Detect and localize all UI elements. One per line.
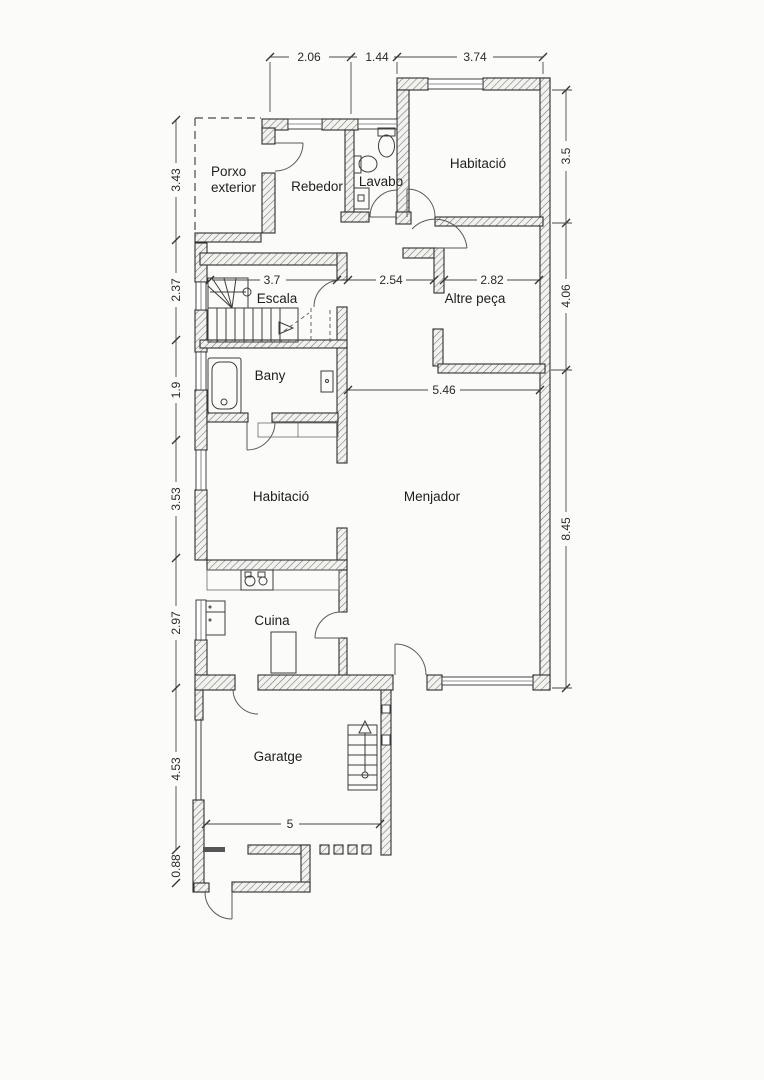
wall-segment (339, 638, 347, 677)
room-label-porxo-1: Porxo (211, 164, 246, 179)
room-label-porxo-2: exterior (211, 180, 257, 195)
window-marker (196, 282, 206, 310)
room-label-menjador: Menjador (404, 489, 461, 504)
dim-interior-garatge: 5 (287, 817, 294, 831)
wall-segment (322, 119, 358, 130)
paper-background (0, 0, 764, 1080)
wall-segment (258, 675, 393, 690)
dim-interior-hall: 2.54 (379, 273, 403, 287)
room-label-habitacio-mid: Habitació (253, 489, 309, 504)
vent-marker (382, 735, 390, 745)
wall-segment (427, 675, 442, 690)
dim-top-1: 1.44 (365, 50, 389, 64)
window-marker (288, 119, 322, 129)
wall-segment (337, 307, 347, 463)
wall-segment (207, 413, 248, 422)
dim-left-0: 3.43 (169, 168, 183, 192)
wall-segment (435, 217, 543, 226)
wall-segment (262, 128, 275, 144)
wall-segment (193, 800, 204, 892)
wall-segment (195, 640, 207, 675)
wall-segment (207, 560, 347, 570)
room-label-escala: Escala (257, 291, 298, 306)
wall-segment (533, 675, 550, 690)
wall-segment (195, 490, 207, 560)
wall-segment (334, 845, 343, 854)
wall-segment (272, 413, 338, 422)
dim-interior-escala: 3.7 (264, 273, 281, 287)
dim-top-2: 3.74 (463, 50, 487, 64)
dim-left-1: 2.37 (169, 278, 183, 302)
wall-segment (320, 845, 329, 854)
wall-segment (195, 390, 207, 450)
floor-plan-svg: Porxo exterior Rebedor Lavabo Habitació … (0, 0, 764, 1080)
dim-left-6: 0.88 (169, 854, 183, 878)
wall-segment (200, 340, 347, 348)
window-marker (196, 352, 206, 390)
room-label-garatge: Garatge (254, 749, 303, 764)
wall-segment (194, 883, 209, 892)
wall-segment (433, 329, 443, 366)
wall-segment (341, 212, 369, 222)
wall-segment (348, 845, 357, 854)
wall-segment (200, 253, 343, 265)
wall-segment (339, 570, 347, 612)
dim-right-1: 4.06 (559, 284, 573, 308)
wall-segment (434, 248, 444, 293)
window-marker (442, 677, 533, 685)
wall-segment (262, 173, 275, 233)
room-label-bany: Bany (255, 368, 286, 383)
room-label-habitacio-top: Habitació (450, 156, 506, 171)
dim-right-0: 3.5 (559, 147, 573, 164)
wall-segment (403, 248, 435, 258)
wall-segment (396, 212, 411, 224)
room-label-altre-peca: Altre peça (445, 291, 506, 306)
wall-segment (540, 78, 550, 690)
vent-marker (382, 705, 390, 713)
dim-left-3: 3.53 (169, 487, 183, 511)
wall-segment (195, 675, 235, 690)
dim-left-2: 1.9 (169, 381, 183, 398)
dim-interior-altre-peca: 2.82 (480, 273, 504, 287)
wall-segment (232, 882, 310, 892)
wall-segment (397, 78, 428, 90)
room-label-lavabo: Lavabo (359, 174, 403, 189)
wall-segment (362, 845, 371, 854)
window-marker (428, 79, 483, 89)
wall-step-strip (203, 847, 225, 852)
wall-segment (345, 130, 354, 212)
dim-left-5: 4.53 (169, 757, 183, 781)
wall-segment (337, 253, 347, 280)
wall-segment (381, 690, 391, 855)
dim-top-0: 2.06 (297, 50, 321, 64)
dim-interior-menjador: 5.46 (432, 383, 456, 397)
wall-segment (438, 364, 545, 373)
window-marker (196, 450, 206, 490)
room-label-rebedor: Rebedor (291, 179, 343, 194)
window-marker (196, 600, 206, 640)
dim-left-4: 2.97 (169, 611, 183, 635)
wall-segment (195, 690, 203, 720)
wall-segment (195, 233, 261, 242)
dim-right-2: 8.45 (559, 517, 573, 541)
room-label-cuina: Cuina (254, 613, 290, 628)
floor-plan-page: Porxo exterior Rebedor Lavabo Habitació … (0, 0, 764, 1080)
